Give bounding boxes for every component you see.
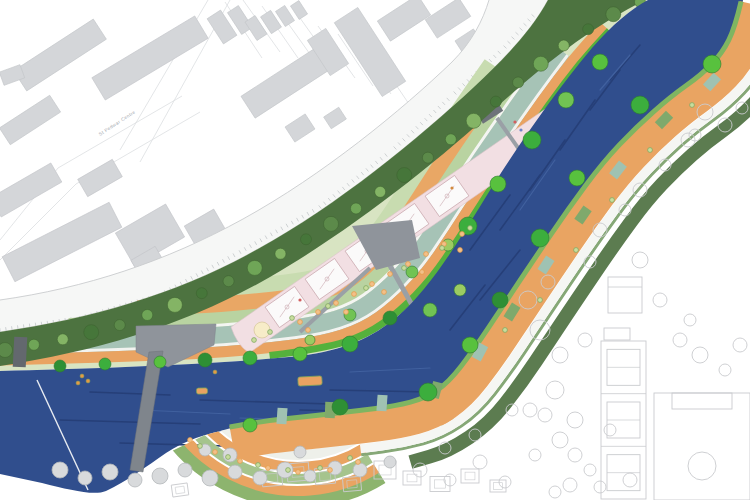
shrub (198, 444, 203, 449)
street-tree (445, 134, 456, 145)
site-plan-map: St Pedwar Centre (0, 0, 750, 500)
proposed-tree (54, 360, 66, 372)
street-tree (558, 40, 569, 51)
shrub (370, 282, 375, 287)
proposed-tree (406, 266, 418, 278)
shrub (316, 310, 321, 315)
context-building (92, 16, 208, 100)
proposed-tree (569, 170, 585, 186)
proposed-tree (558, 92, 574, 108)
street-tree (84, 325, 99, 340)
street-tree (275, 248, 286, 259)
street-tree (466, 113, 481, 128)
context-building (2, 202, 122, 281)
context-tree (473, 455, 487, 469)
existing-tree (52, 462, 68, 478)
proposed-tree (419, 383, 437, 401)
proposed-tree (523, 131, 541, 149)
shrub (402, 266, 407, 271)
proposed-tree (99, 358, 111, 370)
context-tree (552, 347, 568, 363)
playground-circle (254, 322, 270, 338)
shrub (538, 298, 543, 303)
shrub (188, 438, 193, 443)
context-building (324, 107, 347, 129)
shrub (328, 468, 333, 473)
proposed-tree (154, 356, 166, 368)
shrub (388, 272, 393, 277)
street-tree (513, 77, 524, 88)
context-tree (594, 481, 606, 493)
shrub (268, 330, 273, 335)
proposed-tree (592, 54, 608, 70)
context-tree (567, 412, 583, 428)
street-tree (422, 152, 433, 163)
shrub (648, 148, 653, 153)
context-tree (578, 333, 592, 347)
shrub (352, 292, 357, 297)
shrub (690, 103, 695, 108)
pontoon (196, 388, 207, 394)
existing-tree (253, 471, 267, 485)
street-tree (533, 56, 548, 71)
shrub (440, 246, 445, 251)
proposed-tree (490, 176, 506, 192)
context-tree (549, 486, 561, 498)
proposed-tree (293, 347, 307, 361)
context-tree (523, 403, 537, 417)
pontoon (298, 376, 322, 386)
street-tree (350, 203, 361, 214)
street-tree (583, 24, 594, 35)
shrub (424, 252, 429, 257)
context-building (425, 0, 471, 38)
street-tree (0, 343, 13, 358)
existing-tree (384, 456, 396, 468)
context-tree (584, 464, 596, 476)
proposed-tree (243, 351, 257, 365)
proposed-tree (342, 336, 358, 352)
context-tree (692, 347, 708, 363)
shrub (238, 459, 243, 464)
proposed-tree (243, 418, 257, 432)
shrub (256, 463, 261, 468)
context-tree (499, 476, 511, 488)
context-building (0, 163, 62, 217)
context-tree (563, 478, 577, 492)
context-building (14, 19, 107, 91)
context-tree (546, 381, 564, 399)
street-tree (247, 260, 262, 275)
shrub (574, 248, 579, 253)
proposed-tree (198, 353, 212, 367)
shrub (334, 301, 339, 306)
context-tree (623, 473, 637, 487)
existing-tree (294, 446, 306, 458)
existing-tree (152, 468, 168, 484)
shrub (348, 456, 353, 461)
street-tree (375, 186, 386, 197)
existing-tree (128, 473, 142, 487)
site-plan-page: St Pedwar Centre (0, 0, 750, 500)
context-building (377, 0, 430, 41)
shrub (406, 262, 411, 267)
shrub (266, 466, 271, 471)
shrub (252, 338, 257, 343)
context-building (285, 114, 315, 142)
street-tree (28, 339, 39, 350)
existing-tree (228, 465, 242, 479)
street-tree (57, 334, 68, 345)
existing-tree (78, 471, 92, 485)
street-tree (490, 96, 501, 107)
context-tree (673, 333, 687, 347)
existing-tree (202, 470, 218, 486)
context-tree (733, 338, 747, 352)
context-building (290, 1, 307, 20)
street-tree (167, 297, 182, 312)
context-tree (604, 424, 616, 436)
paving-patch (376, 395, 387, 412)
shrub (468, 226, 473, 231)
context-tree (529, 449, 541, 461)
shrub (610, 198, 615, 203)
shrub (326, 304, 331, 309)
proposed-tree (454, 284, 466, 296)
street-tree (301, 234, 312, 245)
context-tree (538, 408, 552, 422)
shrub (213, 450, 218, 455)
context-tree (653, 293, 667, 307)
street-tree (397, 168, 412, 183)
proposed-tree (462, 337, 478, 353)
shrub (460, 232, 465, 237)
context-building-outline (608, 277, 642, 313)
context-building (78, 159, 123, 196)
proposed-tree (332, 399, 348, 415)
shrub (290, 316, 295, 321)
shrub (226, 455, 231, 460)
shrub (382, 290, 387, 295)
lock-structure (13, 337, 28, 368)
context-tree (552, 432, 568, 448)
street-tree (196, 288, 207, 299)
shrub (420, 270, 425, 275)
proposed-tree (631, 96, 649, 114)
existing-tree (102, 464, 118, 480)
shrub (344, 310, 349, 315)
context-tree (632, 252, 648, 268)
shrub (286, 468, 291, 473)
proposed-tree (531, 229, 549, 247)
context-building (0, 95, 61, 144)
street-tree (324, 216, 339, 231)
shrub (318, 466, 323, 471)
street-tree (223, 276, 234, 287)
shrub (458, 248, 463, 253)
shrub (306, 328, 311, 333)
context-tree (684, 314, 696, 326)
shrub (503, 328, 508, 333)
shrub (356, 460, 361, 465)
proposed-tree (492, 292, 508, 308)
paving-patch (276, 408, 287, 425)
existing-tree (353, 463, 367, 477)
shrub (296, 470, 301, 475)
existing-tree (223, 448, 237, 462)
street-tree (606, 7, 621, 22)
proposed-tree (703, 55, 721, 73)
context-tree (568, 448, 582, 462)
street-tree (142, 309, 153, 320)
existing-tree (178, 463, 192, 477)
proposed-tree (423, 303, 437, 317)
proposed-tree (305, 335, 315, 345)
shrub (298, 320, 303, 325)
existing-tree (304, 470, 316, 482)
context-tree (719, 364, 731, 376)
shrub (364, 286, 369, 291)
proposed-tree (383, 311, 397, 325)
street-tree (114, 320, 125, 331)
